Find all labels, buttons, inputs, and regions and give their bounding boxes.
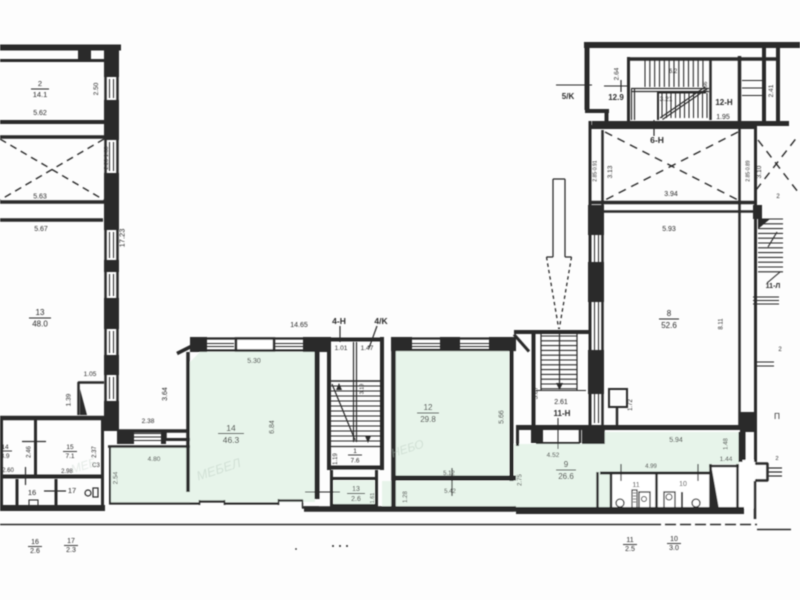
svg-text:6.2: 6.2	[669, 69, 678, 75]
svg-text:46.3: 46.3	[223, 435, 240, 445]
svg-text:17: 17	[67, 538, 75, 545]
svg-text:2.46: 2.46	[27, 446, 33, 458]
svg-text:17: 17	[68, 486, 76, 495]
svg-text:17.23: 17.23	[118, 229, 127, 248]
svg-text:5.63: 5.63	[33, 194, 47, 201]
svg-text:6.84: 6.84	[269, 420, 276, 434]
svg-text:4-H: 4-H	[332, 316, 346, 326]
svg-text:5.66: 5.66	[499, 410, 506, 424]
svg-text:2.64: 2.64	[614, 67, 621, 80]
svg-text:9: 9	[564, 460, 569, 469]
svg-text:2.6: 2.6	[30, 548, 40, 555]
svg-text:1: 1	[353, 448, 357, 455]
svg-text:4/K: 4/K	[374, 316, 388, 326]
svg-text:2.6: 2.6	[351, 496, 361, 503]
svg-text:12.9: 12.9	[608, 93, 624, 102]
svg-text:3.10: 3.10	[756, 165, 763, 178]
svg-text:1.61: 1.61	[370, 493, 376, 504]
svg-text:1.28: 1.28	[403, 491, 409, 503]
svg-text:П: П	[774, 412, 780, 421]
svg-text:2.54: 2.54	[113, 471, 120, 484]
svg-text:2.38: 2.38	[142, 418, 155, 425]
svg-text:2: 2	[775, 456, 778, 462]
svg-text:2: 2	[38, 79, 42, 88]
svg-text:4.99: 4.99	[645, 464, 657, 470]
svg-text:1.05: 1.05	[84, 371, 97, 378]
svg-text:11-H: 11-H	[554, 409, 571, 418]
svg-text:1.44: 1.44	[720, 456, 733, 463]
svg-text:13: 13	[36, 308, 45, 317]
svg-text:14.1: 14.1	[33, 90, 48, 99]
svg-text:1.72: 1.72	[628, 399, 634, 411]
svg-text:1.48: 1.48	[724, 438, 730, 450]
svg-text:29.8: 29.8	[420, 415, 436, 424]
svg-text:26.6: 26.6	[558, 472, 574, 481]
svg-text:1.95: 1.95	[716, 114, 730, 121]
svg-text:5.93: 5.93	[662, 226, 676, 233]
svg-text:2.85·0.91: 2.85·0.91	[593, 160, 599, 181]
svg-text:5.94: 5.94	[669, 437, 683, 444]
svg-text:2.41: 2.41	[768, 84, 775, 97]
svg-text:5/K: 5/K	[562, 92, 575, 101]
svg-text:11: 11	[626, 537, 633, 544]
svg-text:5.30: 5.30	[247, 358, 261, 365]
svg-text:3.13: 3.13	[607, 165, 614, 178]
svg-text:8: 8	[667, 309, 672, 318]
svg-text:5.62: 5.62	[33, 110, 47, 117]
svg-text:1.47: 1.47	[361, 345, 374, 352]
svg-text:7.1: 7.1	[65, 453, 74, 460]
svg-text:16: 16	[28, 488, 36, 497]
svg-text:7.6: 7.6	[350, 458, 359, 465]
svg-text:14: 14	[226, 423, 236, 433]
svg-text:15: 15	[66, 444, 74, 451]
svg-text:2.75: 2.75	[518, 474, 524, 486]
svg-text:10: 10	[679, 481, 687, 488]
svg-text:3.87: 3.87	[533, 386, 540, 399]
svg-text:3.19: 3.19	[360, 384, 366, 395]
svg-text:5.67: 5.67	[34, 226, 48, 233]
svg-text:48.0: 48.0	[32, 320, 48, 329]
svg-text:52.6: 52.6	[661, 321, 677, 330]
svg-text:3.94: 3.94	[664, 191, 678, 198]
svg-text:6-H: 6-H	[650, 135, 664, 145]
svg-text:16: 16	[31, 539, 39, 546]
svg-text:1.39: 1.39	[66, 393, 73, 406]
svg-text:3.0: 3.0	[669, 545, 679, 552]
svg-text:2.60: 2.60	[2, 468, 14, 474]
svg-text:11-Л: 11-Л	[766, 283, 781, 290]
svg-text:2.66: 2.66	[703, 82, 709, 93]
svg-text:2.3: 2.3	[66, 547, 76, 554]
svg-text:2.50: 2.50	[93, 82, 100, 95]
svg-text:8.11: 8.11	[719, 318, 725, 330]
svg-text:1.01: 1.01	[335, 345, 348, 352]
svg-text:4.80: 4.80	[148, 456, 161, 463]
svg-text:3.9: 3.9	[0, 453, 9, 460]
svg-text:12: 12	[424, 403, 433, 412]
svg-text:2.85·0.89: 2.85·0.89	[746, 160, 752, 181]
svg-text:14: 14	[1, 444, 9, 451]
svg-text:10: 10	[670, 536, 678, 543]
svg-text:12-H: 12-H	[715, 98, 733, 107]
svg-text:14.65: 14.65	[290, 322, 308, 329]
svg-text:5.42: 5.42	[444, 489, 456, 495]
svg-text:1.19: 1.19	[333, 453, 339, 465]
svg-text:11: 11	[632, 482, 639, 489]
svg-text:2.61: 2.61	[554, 399, 568, 406]
svg-text:5.12: 5.12	[443, 471, 455, 477]
svg-text:3.21: 3.21	[660, 96, 673, 103]
svg-text:2.28·1.80: 2.28·1.80	[104, 146, 110, 169]
svg-text:4.52: 4.52	[547, 452, 560, 459]
svg-text:13: 13	[352, 486, 360, 493]
svg-text:3.64: 3.64	[162, 387, 169, 401]
svg-text:2.5: 2.5	[625, 546, 635, 553]
